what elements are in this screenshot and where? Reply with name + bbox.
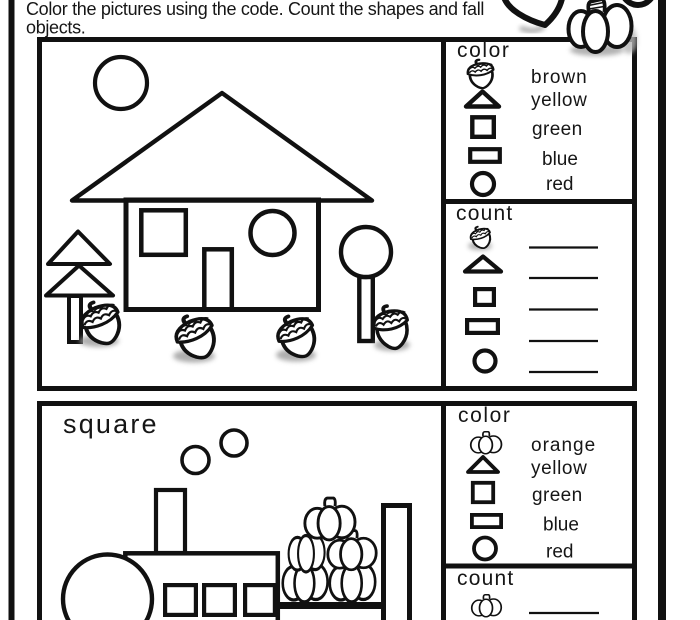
svg-text:blue: blue — [542, 149, 578, 170]
svg-text:green: green — [532, 485, 583, 506]
svg-text:color: color — [457, 39, 511, 62]
svg-text:yellow: yellow — [531, 90, 587, 111]
svg-text:yellow: yellow — [531, 458, 587, 479]
svg-text:green: green — [532, 119, 583, 140]
svg-text:color: color — [458, 404, 512, 427]
svg-text:red: red — [546, 174, 573, 195]
svg-text:red: red — [546, 542, 573, 563]
svg-text:count: count — [456, 202, 513, 225]
svg-text:square: square — [63, 409, 159, 439]
svg-text:Color the pictures using the c: Color the pictures using the code. Count… — [26, 0, 484, 19]
svg-text:brown: brown — [531, 67, 588, 88]
svg-text:blue: blue — [543, 515, 579, 536]
svg-text:orange: orange — [531, 435, 596, 456]
svg-text:objects.: objects. — [26, 18, 85, 38]
svg-text:count: count — [457, 567, 514, 590]
